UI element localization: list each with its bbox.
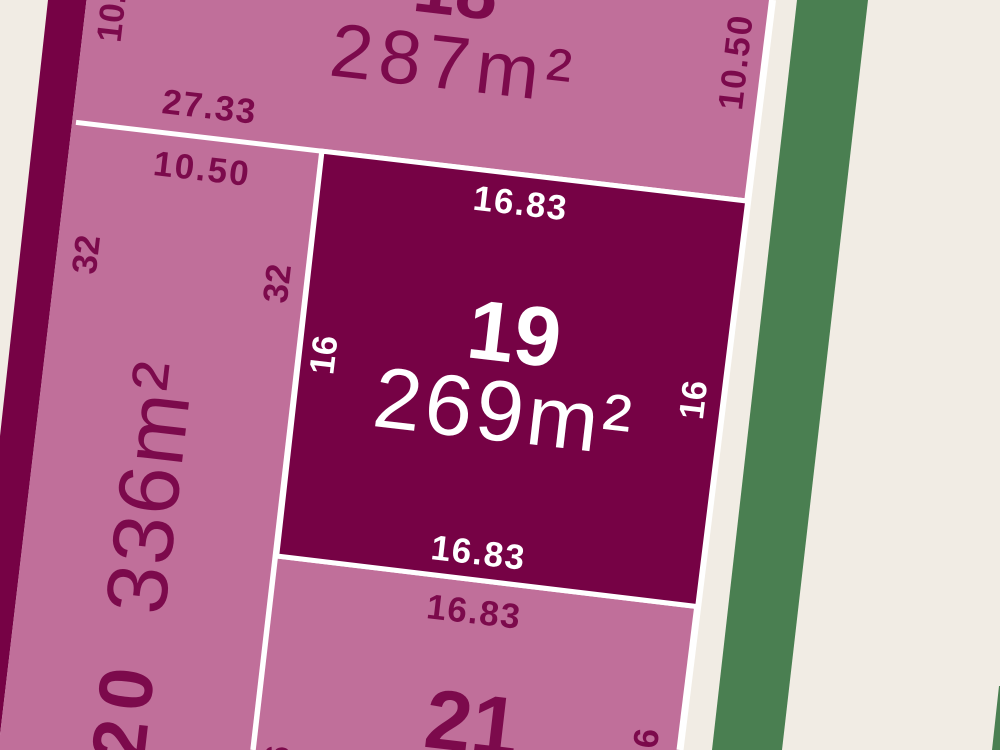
- svg-text:16: 16: [302, 333, 345, 376]
- svg-text:16: 16: [672, 378, 715, 421]
- svg-text:32: 32: [65, 233, 108, 276]
- svg-text:32: 32: [256, 262, 299, 305]
- svg-text:20: 20: [76, 653, 172, 750]
- svg-text:21: 21: [420, 671, 524, 750]
